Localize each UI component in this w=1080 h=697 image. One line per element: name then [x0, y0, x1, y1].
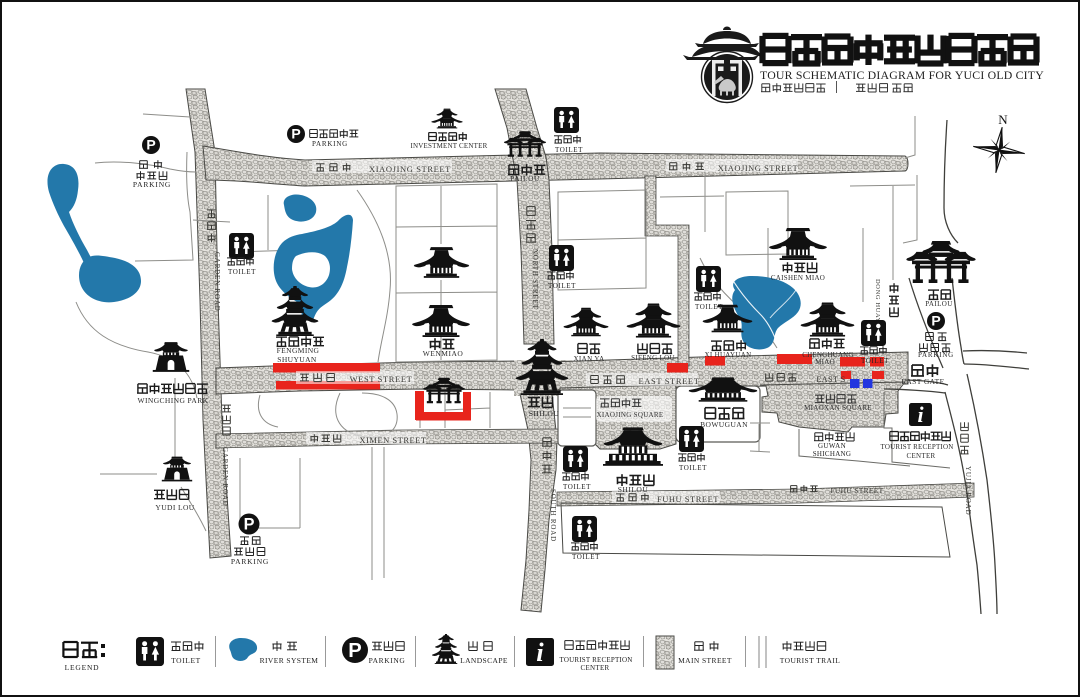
- svg-text:TOURIST RECEPTION: TOURIST RECEPTION: [560, 656, 633, 664]
- svg-text:TOILET: TOILET: [861, 357, 889, 365]
- svg-text:YUJIA ROAD: YUJIA ROAD: [964, 466, 972, 515]
- svg-text:CAISHEN MIAO: CAISHEN MIAO: [771, 274, 825, 282]
- svg-text:SHUYUAN: SHUYUAN: [277, 355, 317, 364]
- svg-text:CENTER: CENTER: [906, 452, 935, 460]
- svg-text:GUWAN: GUWAN: [818, 442, 846, 450]
- svg-text:P: P: [348, 640, 361, 662]
- svg-text:TOILET: TOILET: [679, 464, 707, 472]
- svg-text:P: P: [146, 137, 155, 153]
- svg-text:MIAOXAN SQUARE: MIAOXAN SQUARE: [804, 404, 872, 412]
- svg-text:RIVER SYSTEM: RIVER SYSTEM: [260, 656, 319, 665]
- svg-text:EAST GATE: EAST GATE: [901, 377, 944, 386]
- svg-text:SIFENG LOU: SIFENG LOU: [631, 354, 675, 362]
- svg-text:SHILOU: SHILOU: [529, 409, 560, 418]
- svg-text:P: P: [931, 313, 940, 329]
- svg-text:TOUR SCHEMATIC DIAGRAM FOR YUC: TOUR SCHEMATIC DIAGRAM FOR YUCI OLD CITY: [760, 68, 1044, 82]
- svg-text:NORTH STREET: NORTH STREET: [531, 249, 539, 310]
- svg-text:i: i: [917, 403, 923, 427]
- svg-text:XIAOJING STREET: XIAOJING STREET: [369, 164, 451, 174]
- svg-text:PARKING: PARKING: [133, 180, 171, 189]
- svg-text:TOILET: TOILET: [695, 303, 723, 311]
- svg-text:WINGCHING PARK: WINGCHING PARK: [138, 396, 209, 405]
- svg-text:XIAOJING SQUARE: XIAOJING SQUARE: [597, 411, 664, 419]
- svg-text:TOURIST RECEPTION: TOURIST RECEPTION: [881, 443, 954, 451]
- svg-text:INVESTMENT CENTER: INVESTMENT CENTER: [411, 142, 488, 150]
- svg-text:PAILOU: PAILOU: [510, 174, 540, 183]
- svg-text:TOILET: TOILET: [171, 656, 201, 665]
- svg-text:LEGEND: LEGEND: [65, 663, 100, 672]
- svg-text:MIAO: MIAO: [815, 358, 835, 366]
- svg-text:BOWUGUAN: BOWUGUAN: [700, 420, 748, 429]
- svg-text:XIMEN STREET: XIMEN STREET: [359, 435, 426, 445]
- svg-text:P: P: [244, 516, 255, 534]
- svg-text:CENTER: CENTER: [580, 664, 609, 672]
- svg-text:PARKING: PARKING: [312, 140, 348, 148]
- svg-text:TOILET: TOILET: [555, 146, 583, 154]
- svg-text:TOILET: TOILET: [572, 553, 600, 561]
- svg-text:TOILET: TOILET: [563, 483, 591, 491]
- svg-text:MAIN STREET: MAIN STREET: [678, 656, 732, 665]
- svg-text:FENGMING: FENGMING: [277, 346, 320, 355]
- svg-text:SHILOU: SHILOU: [618, 485, 649, 494]
- svg-text:XIAOJING STREET: XIAOJING STREET: [718, 163, 799, 173]
- svg-text:YUDI LOU: YUDI LOU: [155, 503, 194, 512]
- svg-text:SHICHANG: SHICHANG: [813, 450, 852, 458]
- svg-text:WEST STREET: WEST STREET: [350, 374, 413, 384]
- svg-text:XIAN YA: XIAN YA: [573, 355, 604, 363]
- svg-text:PARKING: PARKING: [918, 351, 954, 359]
- svg-text:EAST S: EAST S: [816, 375, 845, 384]
- svg-text:GARDEN ROAD: GARDEN ROAD: [213, 252, 221, 312]
- svg-text:N: N: [998, 112, 1008, 127]
- svg-text:TOILET: TOILET: [548, 282, 576, 290]
- svg-text:PARKING: PARKING: [369, 656, 406, 665]
- svg-text:LANDSCAPE: LANDSCAPE: [460, 656, 508, 665]
- svg-text:GARDEN ROAD: GARDEN ROAD: [221, 447, 229, 507]
- svg-text:i: i: [536, 637, 544, 667]
- svg-text:WENMIAO: WENMIAO: [423, 349, 464, 358]
- svg-text:EAST STREET: EAST STREET: [639, 376, 700, 386]
- svg-text:FUHU STREET: FUHU STREET: [657, 494, 719, 504]
- svg-text:P: P: [291, 126, 300, 142]
- svg-text:PARKING: PARKING: [231, 557, 269, 566]
- svg-text:TOILET: TOILET: [228, 268, 256, 276]
- svg-text:PAILOU: PAILOU: [925, 300, 952, 308]
- svg-text:SOUTH ROAD: SOUTH ROAD: [549, 489, 557, 542]
- svg-text:FUHU STREET: FUHU STREET: [830, 486, 883, 495]
- svg-text:XI HUAYUAN: XI HUAYUAN: [705, 351, 752, 359]
- svg-text:TOURIST TRAIL: TOURIST TRAIL: [780, 656, 840, 665]
